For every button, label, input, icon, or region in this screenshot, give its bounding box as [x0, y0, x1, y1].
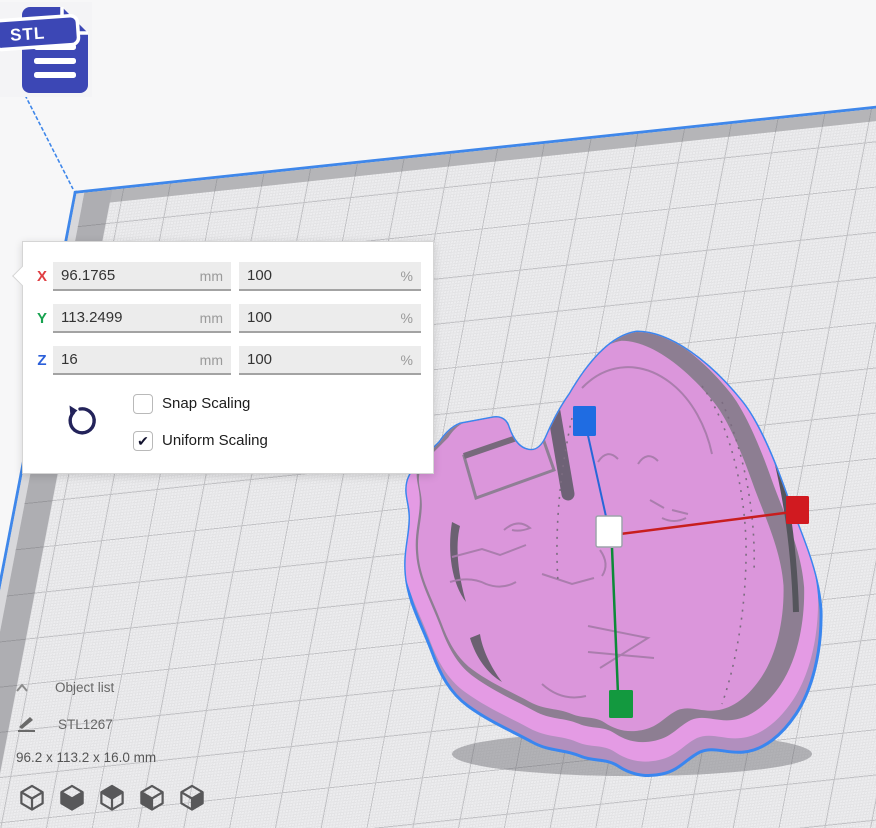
left-side-view-button[interactable]	[138, 784, 166, 812]
camera-view-toolbar	[18, 784, 206, 812]
plate-edge-band-top	[74, 89, 876, 206]
stl-badge-label: STL	[10, 24, 46, 45]
axis-x-label: X	[33, 262, 51, 291]
chevron-up-icon	[14, 681, 30, 695]
scale-row-y: Y mm %	[23, 304, 433, 333]
uniform-scaling-checkbox[interactable]: ✔	[133, 431, 153, 451]
cube-right-icon	[178, 784, 206, 812]
axis-z-label: Z	[33, 346, 51, 375]
snap-scaling-label: Snap Scaling	[162, 394, 250, 414]
x-percent-input[interactable]	[239, 262, 421, 291]
object-list-item[interactable]: STL1267	[0, 715, 113, 733]
uniform-scaling-label: Uniform Scaling	[162, 431, 268, 451]
axis-y-label: Y	[33, 304, 51, 333]
callout-line	[25, 95, 73, 189]
cube-left-icon	[138, 784, 166, 812]
snap-scaling-checkbox[interactable]	[133, 394, 153, 414]
scale-handle-green[interactable]	[609, 690, 633, 718]
scale-handle-red[interactable]	[786, 496, 809, 524]
stl-badge: STL	[0, 15, 79, 50]
object-list-header[interactable]: Object list	[0, 680, 114, 695]
selected-model-dimensions: 96.2 x 113.2 x 16.0 mm	[16, 750, 156, 765]
cube-front-icon	[58, 784, 86, 812]
3d-view-button[interactable]	[18, 784, 46, 812]
object-list-panel: Object list STL1267 96.2 x 113.2 x 16.0 …	[0, 670, 260, 828]
object-list-title: Object list	[55, 680, 114, 695]
scale-handle-blue[interactable]	[573, 406, 596, 436]
z-size-input[interactable]	[53, 346, 231, 375]
stl-file-icon: STL	[0, 2, 92, 97]
front-view-button[interactable]	[58, 784, 86, 812]
rotate-ccw-icon	[63, 404, 97, 438]
right-side-view-button[interactable]	[178, 784, 206, 812]
y-percent-input[interactable]	[239, 304, 421, 333]
reset-scale-button[interactable]	[63, 404, 97, 438]
model-stl1267[interactable]	[392, 322, 842, 812]
x-size-input[interactable]	[53, 262, 231, 291]
z-percent-input[interactable]	[239, 346, 421, 375]
y-size-input[interactable]	[53, 304, 231, 333]
cube-top-icon	[98, 784, 126, 812]
scale-row-z: Z mm %	[23, 346, 433, 375]
scale-row-x: X mm %	[23, 262, 433, 291]
scale-tool-panel: X mm % Y mm % Z mm	[22, 241, 434, 474]
object-item-name: STL1267	[58, 717, 113, 732]
cube-3d-icon	[18, 784, 46, 812]
pencil-icon	[16, 715, 38, 733]
top-view-button[interactable]	[98, 784, 126, 812]
viewport: STL	[0, 0, 876, 828]
scale-handle-center[interactable]	[596, 516, 622, 547]
